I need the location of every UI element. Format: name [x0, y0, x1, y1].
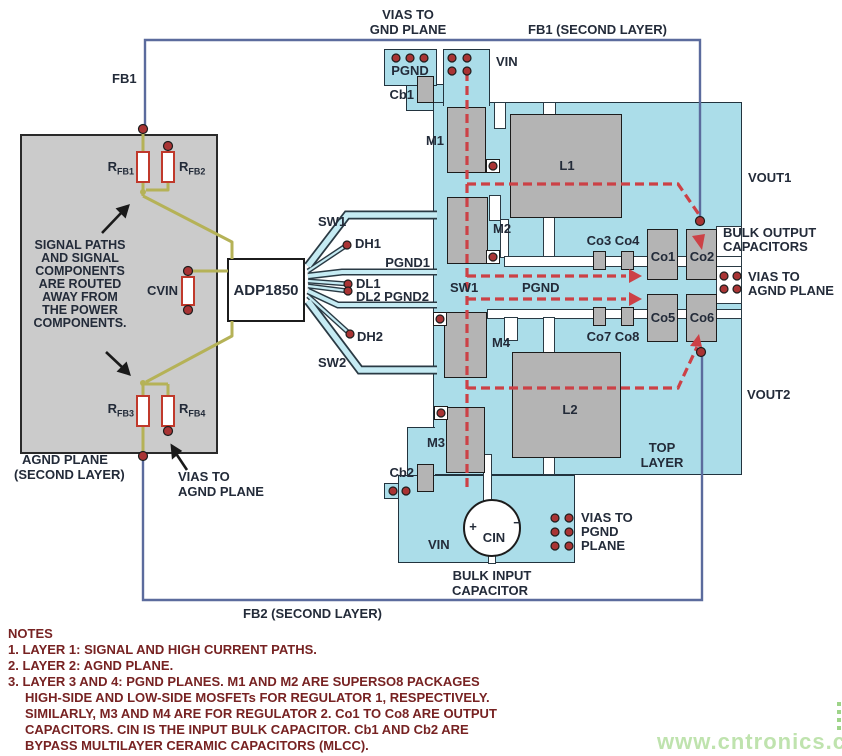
fb2-second-layer-label: FB2 (SECOND LAYER)	[243, 607, 382, 620]
adp1850-chip: ADP1850	[227, 258, 305, 322]
sw2-trace-label: SW2	[318, 356, 346, 369]
vout2-label: VOUT2	[747, 388, 790, 401]
mosfet-m1	[447, 107, 486, 173]
dh1-label: DH1	[355, 237, 381, 250]
via-pad-m3	[434, 406, 448, 420]
cb1-label: Cb1	[389, 88, 414, 101]
cap-co7	[593, 307, 606, 326]
via-pad-m4	[433, 312, 447, 326]
dh2-label: DH2	[357, 330, 383, 343]
vout1-label: VOUT1	[748, 171, 791, 184]
vias-pgnd-plane-label: VIAS TO	[581, 511, 633, 524]
bulk-output-caps-label: CAPACITORS	[723, 240, 808, 253]
bulk-input-cap-label: BULK INPUT	[453, 569, 532, 582]
top-layer-label: LAYER	[641, 456, 684, 469]
agnd-plane-label: AGND PLANE	[22, 453, 108, 466]
mosfet-m4	[444, 312, 487, 378]
vias-agnd-left-label: AGND PLANE	[178, 485, 264, 498]
resistor-rfb2	[161, 151, 175, 183]
notes-line: 1. LAYER 1: SIGNAL AND HIGH CURRENT PATH…	[8, 643, 317, 656]
capacitor-cvin	[181, 276, 195, 306]
pcb-layout-diagram: { "labels": { "vias_gnd_1": "VIAS TO", "…	[0, 0, 842, 756]
via-pad-m2	[486, 250, 500, 264]
co3-co4-label: Co3 Co4	[587, 234, 640, 247]
cap-co4	[621, 251, 634, 270]
rfb2-label: RFB2	[179, 160, 205, 179]
l1-label: L1	[559, 159, 574, 172]
notes-line: CAPACITORS. CIN IS THE INPUT BULK CAPACI…	[25, 723, 469, 736]
net-slot	[494, 102, 506, 129]
pgnd-pad-label: PGND	[391, 64, 429, 77]
notes-title: NOTES	[8, 627, 53, 640]
cin-plus-sign: +	[469, 520, 477, 533]
fb1-label: FB1	[112, 72, 137, 85]
m2-label: M2	[493, 222, 511, 235]
signal-note-line: SIGNAL PATHS	[35, 238, 126, 252]
m4-label: M4	[492, 336, 510, 349]
notes-line: HIGH-SIDE AND LOW-SIDE MOSFETs FOR REGUL…	[25, 691, 490, 704]
m3-label: M3	[427, 436, 445, 449]
vias-pgnd-plane-label: PGND	[581, 525, 619, 538]
vias-gnd-plane-label: GND PLANE	[370, 23, 447, 36]
sw1-trace-label: SW1	[318, 215, 346, 228]
bulk-input-cap-label: CAPACITOR	[452, 584, 528, 597]
bulk-output-caps-label: BULK OUTPUT	[723, 226, 816, 239]
net-slot	[543, 317, 555, 354]
net-slot	[543, 217, 555, 258]
cin-label: CIN	[483, 531, 505, 544]
vias-agnd-right-label: AGND PLANE	[748, 284, 834, 297]
cvin-label: CVIN	[147, 284, 178, 297]
resistor-rfb4	[161, 395, 175, 427]
vias-agnd-left-label: VIAS TO	[178, 470, 230, 483]
co1-label: Co1	[651, 250, 676, 263]
signal-note-line: THE POWER	[42, 303, 118, 317]
vias-pgnd-plane-label: PLANE	[581, 539, 625, 552]
notes-line: 3. LAYER 3 AND 4: PGND PLANES. M1 AND M2…	[8, 675, 480, 688]
net-slot	[543, 457, 555, 475]
resistor-rfb3	[136, 395, 150, 427]
notes-line: SIMILARLY, M3 AND M4 ARE FOR REGULATOR 2…	[25, 707, 497, 720]
top-layer-label: TOP	[649, 441, 676, 454]
vias-gnd-plane-label: VIAS TO	[382, 8, 434, 21]
rfb4-label: RFB4	[179, 402, 205, 421]
rfb1-label: RFB1	[108, 160, 134, 179]
net-slot	[489, 195, 501, 221]
via-pad-m1	[486, 159, 500, 173]
signal-note-line: AND SIGNAL	[41, 251, 119, 265]
m1-label: M1	[426, 134, 444, 147]
corridor-pgnd-label: PGND	[522, 281, 560, 294]
mosfet-m3	[446, 407, 485, 473]
pgnd1-label: PGND1	[385, 256, 430, 269]
vin-strip-plane	[443, 49, 490, 106]
vias-agnd-right-label: VIAS TO	[748, 270, 800, 283]
signal-note-line: COMPONENTS.	[33, 316, 126, 330]
corridor-sw1-label: SW1	[450, 281, 478, 294]
resistor-rfb1	[136, 151, 150, 183]
signal-note-line: COMPONENTS	[35, 264, 125, 278]
notes-line: BYPASS MULTILAYER CERAMIC CAPACITORS (ML…	[25, 739, 369, 752]
co7-co8-label: Co7 Co8	[587, 330, 640, 343]
dl2-pgnd2-label: DL2 PGND2	[356, 290, 429, 303]
cin-minus-sign: −	[513, 516, 521, 529]
watermark: www.cntronics.com	[657, 729, 842, 755]
mosfet-m2	[447, 197, 488, 264]
vin-top-label: VIN	[496, 55, 518, 68]
signal-note-line: ARE ROUTED	[39, 277, 122, 291]
cb2-label: Cb2	[389, 466, 414, 479]
co2-label: Co2	[690, 250, 715, 263]
signal-note-line: AWAY FROM	[42, 290, 118, 304]
vin-bottom-label: VIN	[428, 538, 450, 551]
rfb3-label: RFB3	[108, 402, 134, 421]
notes-line: 2. LAYER 2: AGND PLANE.	[8, 659, 173, 672]
cap-cb1	[417, 76, 434, 103]
cap-cb2	[417, 464, 434, 492]
l2-label: L2	[562, 403, 577, 416]
co6-label: Co6	[690, 311, 715, 324]
agnd-plane-label: (SECOND LAYER)	[14, 468, 125, 481]
co5-label: Co5	[651, 311, 676, 324]
cap-co8	[621, 307, 634, 326]
cap-co3	[593, 251, 606, 270]
fb1-second-layer-label: FB1 (SECOND LAYER)	[528, 23, 667, 36]
